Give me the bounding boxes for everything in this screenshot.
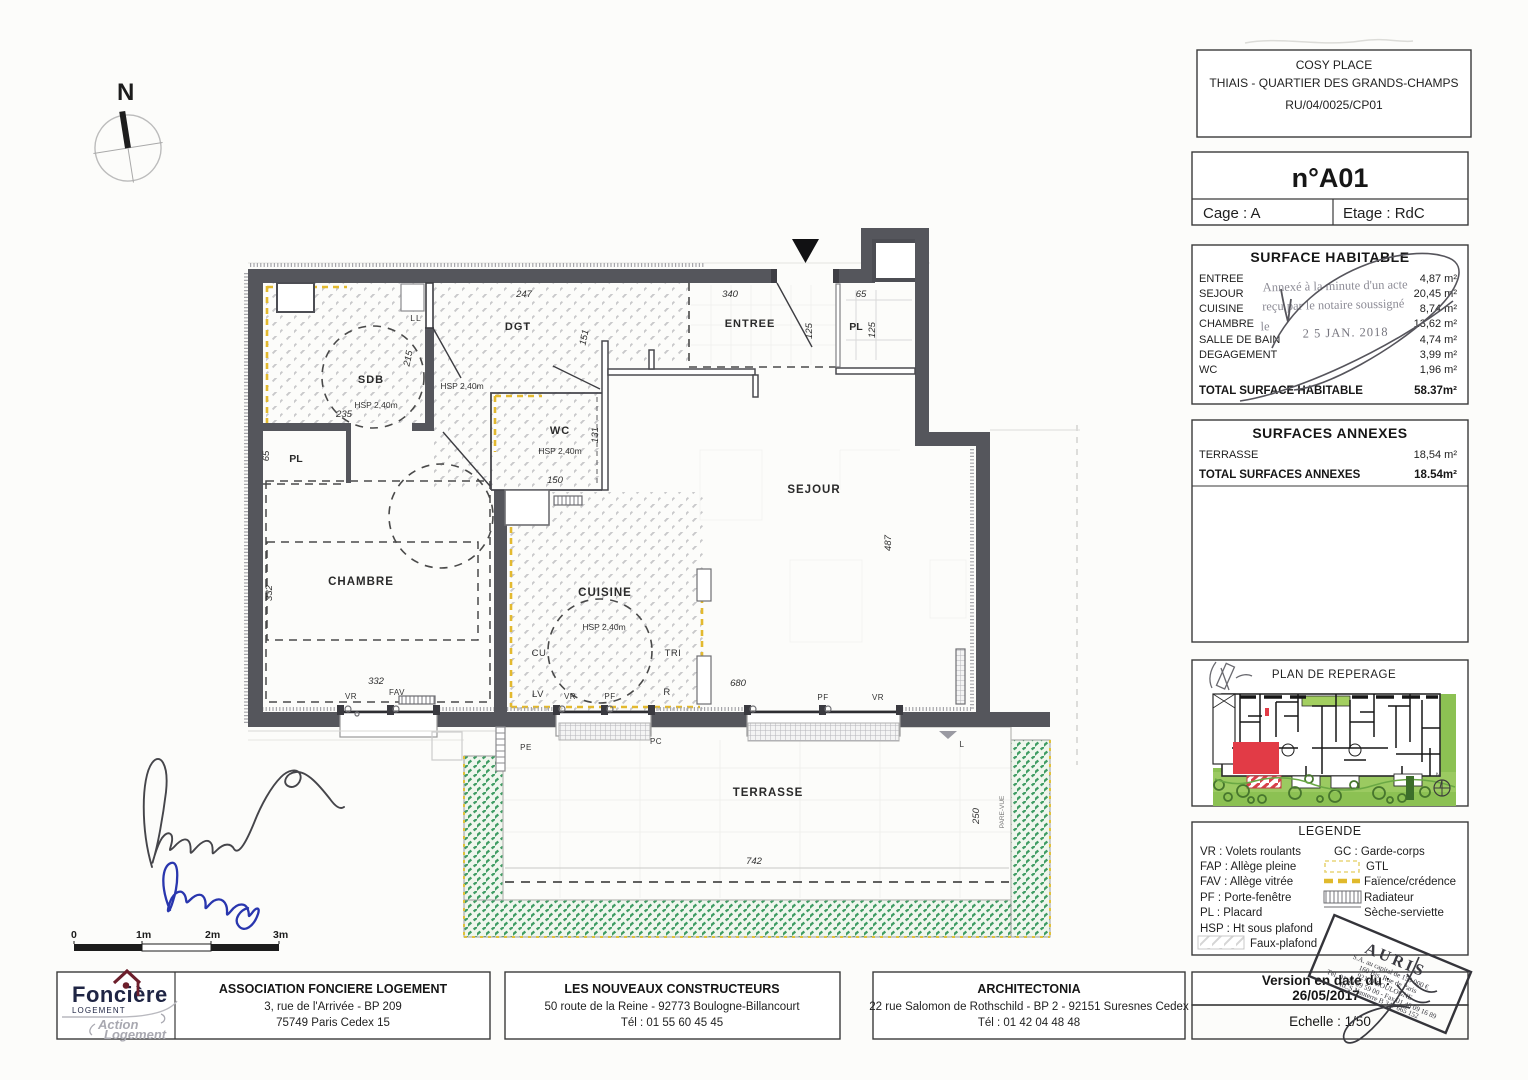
svg-text:487: 487 <box>883 534 894 551</box>
svg-text:Tél : 01 42 04 48 48: Tél : 01 42 04 48 48 <box>978 1017 1080 1029</box>
svg-text:75749 Paris Cedex 15: 75749 Paris Cedex 15 <box>276 1017 390 1029</box>
svg-text:22 rue Salomon de Rothschild -: 22 rue Salomon de Rothschild - BP 2 - 92… <box>869 1001 1189 1013</box>
svg-text:HSP 2,40m: HSP 2,40m <box>538 446 581 456</box>
svg-text:0: 0 <box>71 929 77 941</box>
svg-text:le: le <box>1260 319 1270 333</box>
svg-text:125: 125 <box>867 321 878 338</box>
svg-text:742: 742 <box>746 856 763 867</box>
svg-text:2 5 JAN. 2018: 2 5 JAN. 2018 <box>1303 325 1389 341</box>
svg-text:ARCHITECTONIA: ARCHITECTONIA <box>977 982 1080 996</box>
svg-text:Faïence/crédence: Faïence/crédence <box>1364 876 1456 888</box>
svg-text:SDB: SDB <box>358 374 384 386</box>
svg-text:250: 250 <box>971 807 982 825</box>
svg-text:R: R <box>663 687 670 698</box>
svg-text:125: 125 <box>804 322 815 339</box>
svg-text:ENTREE: ENTREE <box>725 318 776 330</box>
svg-text:LES NOUVEAUX CONSTRUCTEURS: LES NOUVEAUX CONSTRUCTEURS <box>564 982 779 996</box>
svg-text:Etage : RdC: Etage : RdC <box>1343 205 1425 222</box>
svg-text:1m: 1m <box>136 929 151 941</box>
svg-text:50 route de la Reine - 92773 B: 50 route de la Reine - 92773 Boulogne-Bi… <box>544 1001 800 1013</box>
svg-text:SURFACE HABITABLE: SURFACE HABITABLE <box>1250 249 1409 265</box>
svg-text:SALLE DE BAIN: SALLE DE BAIN <box>1199 334 1280 346</box>
svg-text:PF: PF <box>604 692 615 701</box>
svg-text:CUISINE: CUISINE <box>578 587 632 599</box>
svg-text:Cage : A: Cage : A <box>1203 205 1261 222</box>
svg-text:131: 131 <box>590 427 601 443</box>
svg-text:332: 332 <box>368 676 385 687</box>
svg-text:4,87 m²: 4,87 m² <box>1420 273 1458 285</box>
svg-text:235: 235 <box>335 409 353 420</box>
svg-text:L: L <box>960 740 965 749</box>
svg-text:Tél : 01 55 60 45 45: Tél : 01 55 60 45 45 <box>621 1017 723 1029</box>
svg-text:TERRASSE: TERRASSE <box>733 787 804 799</box>
svg-text:PF : Porte-fenêtre: PF : Porte-fenêtre <box>1200 892 1291 904</box>
svg-text:2m: 2m <box>205 929 220 941</box>
svg-text:PF: PF <box>817 693 828 702</box>
svg-text:LL: LL <box>410 313 421 323</box>
svg-text:COSY PLACE: COSY PLACE <box>1296 58 1372 72</box>
svg-text:CU: CU <box>532 648 547 659</box>
svg-text:CHAMBRE: CHAMBRE <box>1199 318 1254 330</box>
svg-text:ASSOCIATION FONCIERE LOGEMENT: ASSOCIATION FONCIERE LOGEMENT <box>219 982 448 996</box>
svg-text:18,54 m²: 18,54 m² <box>1414 449 1458 461</box>
svg-text:GTL: GTL <box>1366 861 1389 873</box>
svg-text:RU/04/0025/CP01: RU/04/0025/CP01 <box>1285 98 1383 112</box>
svg-text:ENTREE: ENTREE <box>1199 273 1244 285</box>
svg-text:DGT: DGT <box>505 321 531 333</box>
svg-text:18.54m²: 18.54m² <box>1414 469 1457 481</box>
svg-text:1,96 m²: 1,96 m² <box>1420 364 1458 376</box>
svg-text:WC: WC <box>1199 364 1217 376</box>
svg-text:340: 340 <box>722 289 739 300</box>
svg-text:WC: WC <box>550 425 570 437</box>
svg-text:PE: PE <box>520 743 532 752</box>
svg-text:PL : Placard: PL : Placard <box>1200 907 1262 919</box>
svg-text:PLAN DE REPERAGE: PLAN DE REPERAGE <box>1272 669 1396 681</box>
svg-text:VR: VR <box>872 693 884 702</box>
svg-text:Logement: Logement <box>104 1027 167 1042</box>
svg-text:FAV : Allège vitrée: FAV : Allège vitrée <box>1200 876 1293 888</box>
svg-text:PL: PL <box>289 453 303 465</box>
svg-text:DEGAGEMENT: DEGAGEMENT <box>1199 349 1278 361</box>
svg-text:THIAIS - QUARTIER DES GRANDS-C: THIAIS - QUARTIER DES GRANDS-CHAMPS <box>1209 76 1458 90</box>
svg-text:Foncière: Foncière <box>72 982 168 1007</box>
svg-text:TERRASSE: TERRASSE <box>1199 449 1258 461</box>
svg-text:N: N <box>117 79 134 106</box>
svg-text:HSP 2,40m: HSP 2,40m <box>440 381 483 391</box>
svg-text:3m: 3m <box>273 929 288 941</box>
svg-text:58.37m²: 58.37m² <box>1414 385 1457 397</box>
svg-text:n°A01: n°A01 <box>1292 163 1369 193</box>
svg-text:TRI: TRI <box>665 648 682 659</box>
svg-text:Faux-plafond: Faux-plafond <box>1250 938 1317 950</box>
svg-text:HSP 2,40m: HSP 2,40m <box>354 400 397 410</box>
svg-text:4,74 m²: 4,74 m² <box>1420 334 1458 346</box>
svg-text:SEJOUR: SEJOUR <box>1199 288 1244 300</box>
svg-text:TOTAL SURFACES ANNEXES: TOTAL SURFACES ANNEXES <box>1199 469 1361 481</box>
svg-text:3,99 m²: 3,99 m² <box>1420 349 1458 361</box>
svg-text:FAV: FAV <box>389 688 405 697</box>
svg-text:CHAMBRE: CHAMBRE <box>328 576 394 588</box>
svg-text:PL: PL <box>849 321 863 333</box>
svg-text:Radiateur: Radiateur <box>1364 892 1414 904</box>
svg-text:65: 65 <box>856 289 867 300</box>
svg-text:LEGENDE: LEGENDE <box>1298 824 1361 838</box>
svg-text:N: N <box>1436 773 1440 779</box>
svg-text:HSP : Ht sous plafond: HSP : Ht sous plafond <box>1200 923 1313 935</box>
svg-text:SEJOUR: SEJOUR <box>787 484 840 496</box>
svg-text:PC: PC <box>650 737 662 746</box>
svg-text:LV: LV <box>532 689 544 700</box>
svg-text:247: 247 <box>515 289 533 300</box>
svg-text:GC : Garde-corps: GC : Garde-corps <box>1334 846 1425 858</box>
svg-text:LOGEMENT: LOGEMENT <box>72 1006 126 1015</box>
svg-text:65: 65 <box>261 450 272 461</box>
svg-text:VR: VR <box>564 692 576 701</box>
svg-text:PARE-VUE: PARE-VUE <box>999 795 1006 828</box>
svg-text:332: 332 <box>264 584 275 601</box>
svg-text:SURFACES ANNEXES: SURFACES ANNEXES <box>1252 425 1407 441</box>
svg-text:Sèche-serviette: Sèche-serviette <box>1364 907 1444 919</box>
svg-text:150: 150 <box>547 475 564 486</box>
svg-text:HSP 2,40m: HSP 2,40m <box>582 622 625 632</box>
svg-text:680: 680 <box>730 678 747 689</box>
svg-text:FAP : Allège pleine: FAP : Allège pleine <box>1200 861 1296 873</box>
svg-text:VR: VR <box>345 692 357 701</box>
svg-text:CUISINE: CUISINE <box>1199 303 1244 315</box>
svg-text:VR : Volets roulants: VR : Volets roulants <box>1200 846 1301 858</box>
svg-text:3, rue de l'Arrivée - BP 209: 3, rue de l'Arrivée - BP 209 <box>264 1001 402 1013</box>
